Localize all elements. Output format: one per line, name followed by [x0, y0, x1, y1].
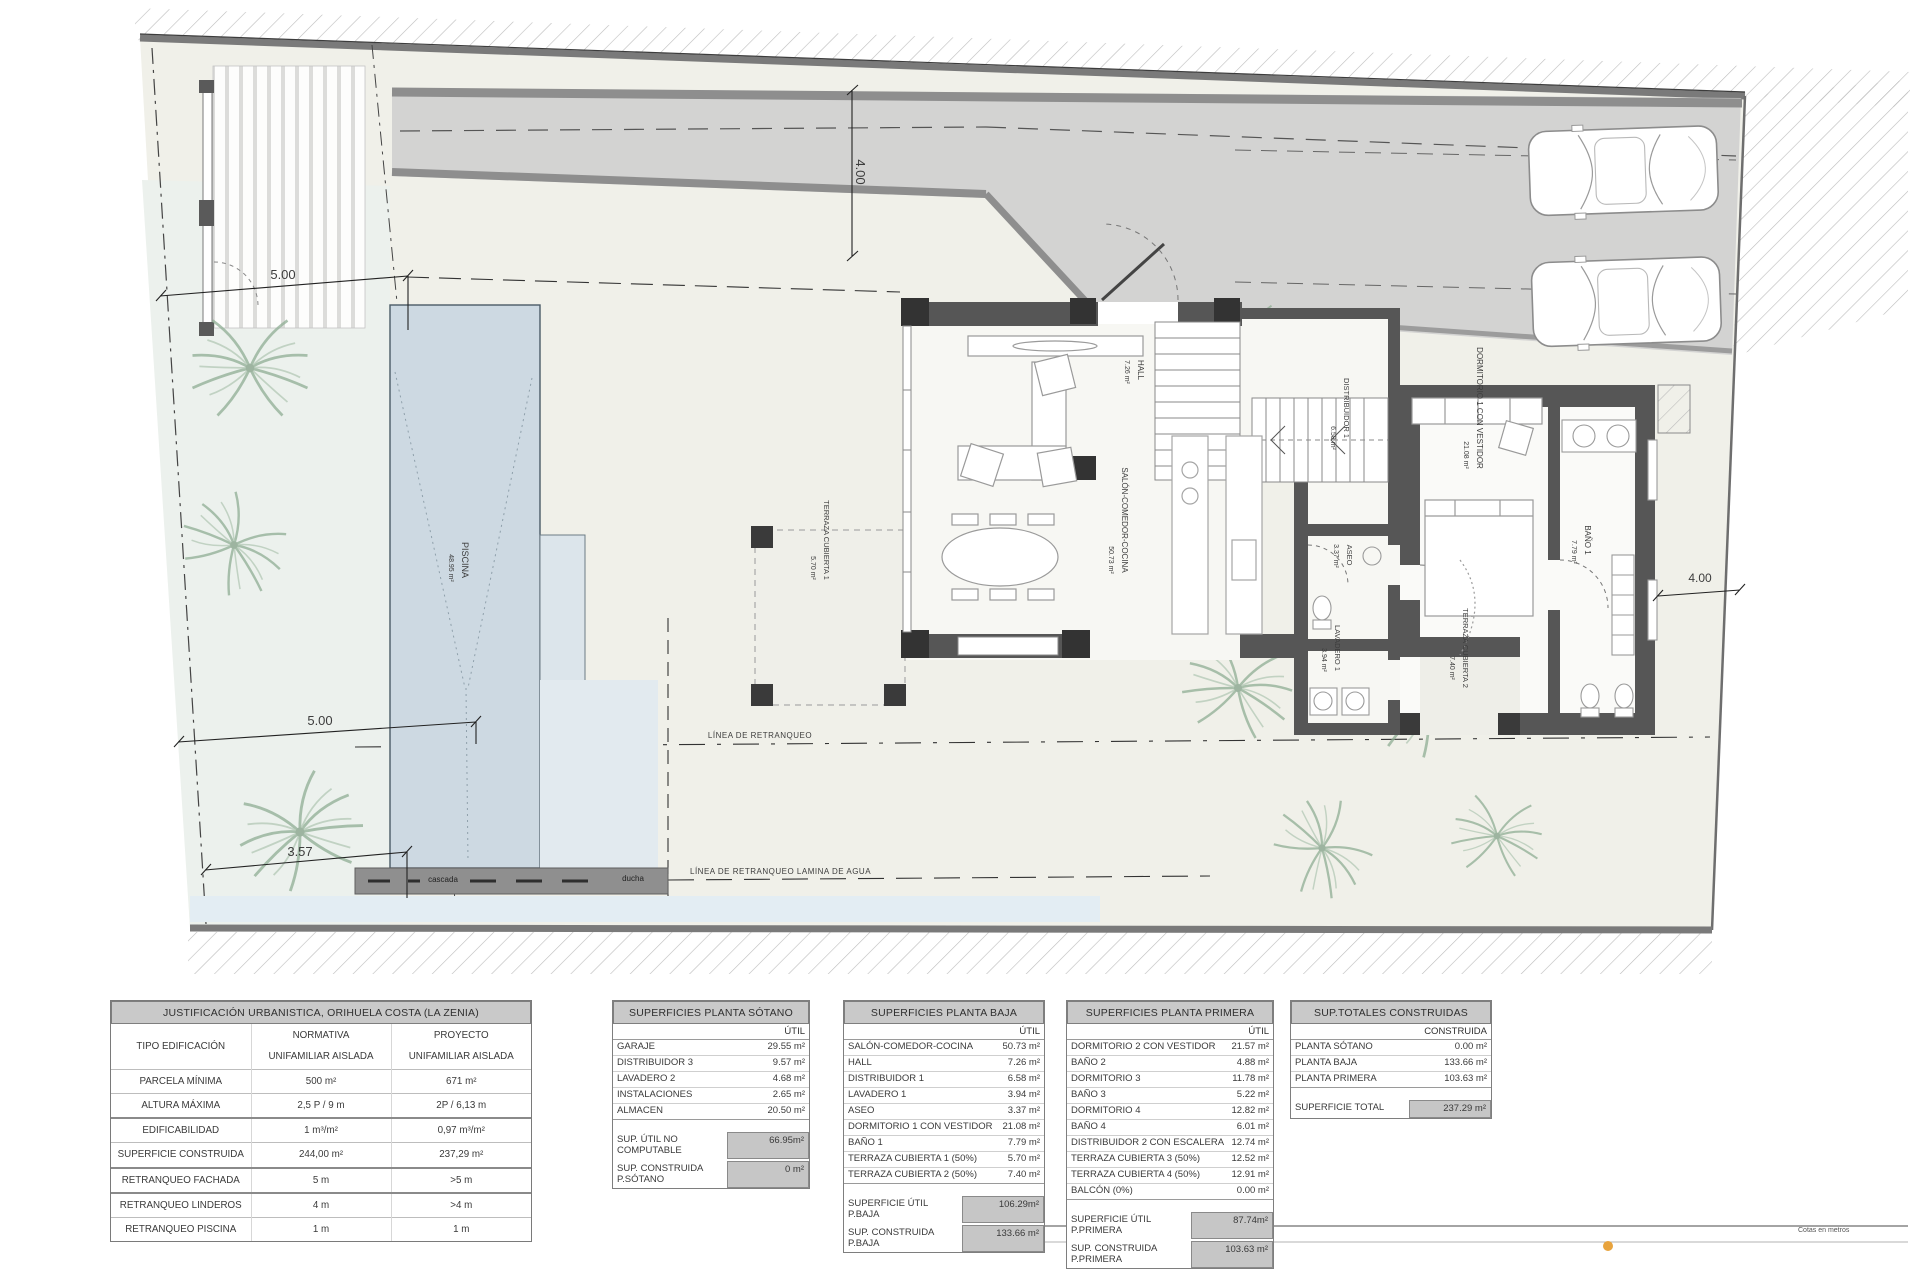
- cell-value: 4.88 m²: [1237, 1058, 1269, 1070]
- cell-value: 12.91 m²: [1232, 1170, 1270, 1182]
- cell-value: 6.58 m²: [1008, 1074, 1040, 1086]
- table-row: TERRAZA CUBIERTA 2 (50%)7.40 m²: [844, 1168, 1044, 1184]
- row-label: ALMACEN: [617, 1106, 667, 1118]
- column-header: NORMATIVA: [255, 1030, 388, 1041]
- cell-value: 103.63 m²: [1444, 1074, 1487, 1086]
- cell-value: 0,97 m³/m²: [391, 1118, 531, 1143]
- table-row: DORMITORIO 2 CON VESTIDOR21.57 m²: [1067, 1040, 1273, 1056]
- summary-label: SUP. CONSTRUIDA P.SÓTANO: [613, 1161, 727, 1188]
- summary-value: 103.63 m²: [1191, 1241, 1273, 1268]
- table-title: SUPERFICIES PLANTA SÓTANO: [613, 1001, 809, 1024]
- cell-value: 21.57 m²: [1232, 1042, 1270, 1054]
- reference-dot: [1603, 1241, 1613, 1251]
- row-label: DISTRIBUIDOR 3: [617, 1058, 697, 1070]
- row-label: DORMITORIO 1 CON VESTIDOR: [848, 1122, 996, 1134]
- row-label: PLANTA PRIMERA: [1295, 1074, 1381, 1086]
- cell-value: 244,00 m²: [251, 1143, 391, 1168]
- table-row: PLANTA BAJA133.66 m²: [1291, 1056, 1491, 1072]
- table-title: JUSTIFICACIÓN URBANISTICA, ORIHUELA COST…: [111, 1001, 531, 1024]
- row-label: ASEO: [848, 1106, 878, 1118]
- column-header: ÚTIL: [613, 1024, 809, 1039]
- table-summary: SUP. ÚTIL NO COMPUTABLE66.95m²SUP. CONST…: [613, 1132, 809, 1188]
- cell-value: >4 m: [391, 1193, 531, 1218]
- cell-value: UNIFAMILIAR AISLADA: [409, 1051, 514, 1062]
- dimension-label: 4.00: [853, 159, 868, 184]
- column-header: PROYECTO: [395, 1030, 529, 1041]
- room-label: DISTRIBUIDOR 1: [1342, 378, 1351, 438]
- cell-value: 237,29 m²: [391, 1143, 531, 1168]
- row-label: EDIFICABILIDAD: [111, 1118, 251, 1143]
- table-superficies-baja: SUPERFICIES PLANTA BAJA ÚTIL SALÓN-COMED…: [843, 1000, 1045, 1253]
- table-superficies-primera: SUPERFICIES PLANTA PRIMERA ÚTIL DORMITOR…: [1066, 1000, 1274, 1269]
- cell-value: 7.40 m²: [1008, 1170, 1040, 1182]
- row-label: PARCELA MÍNIMA: [111, 1069, 251, 1093]
- summary-label: SUP. CONSTRUIDA P.PRIMERA: [1067, 1241, 1191, 1268]
- cell-value: UNIFAMILIAR AISLADA: [268, 1051, 373, 1062]
- row-label: BAÑO 1: [848, 1138, 887, 1150]
- row-label: LAVADERO 1: [848, 1090, 910, 1102]
- room-area-label: 6.58 m²: [1329, 426, 1336, 450]
- table-row: HALL7.26 m²: [844, 1056, 1044, 1072]
- cell-value: >5 m: [391, 1168, 531, 1193]
- summary-value: 106.29m²: [962, 1196, 1044, 1223]
- column-header-cell: PROYECTOUNIFAMILIAR AISLADA: [391, 1024, 531, 1069]
- cell-value: 133.66 m²: [1444, 1058, 1487, 1070]
- table-row: INSTALACIONES2.65 m²: [613, 1088, 809, 1104]
- room-area-label: 7.40 m²: [1448, 656, 1455, 680]
- cell-value: 0.00 m²: [1455, 1042, 1487, 1054]
- row-label: BAÑO 3: [1071, 1090, 1110, 1102]
- table-row: LAVADERO 13.94 m²: [844, 1088, 1044, 1104]
- room-area-label: 21.08 m²: [1462, 441, 1469, 469]
- exterior-steps: [1658, 385, 1690, 433]
- table-row: DISTRIBUIDOR 16.58 m²: [844, 1072, 1044, 1088]
- table-title: SUP.TOTALES CONSTRUIDAS: [1291, 1001, 1491, 1024]
- table-row: TERRAZA CUBIERTA 3 (50%)12.52 m²: [1067, 1152, 1273, 1168]
- dimension-label: 4.00: [1688, 571, 1712, 585]
- row-label: ALTURA MÁXIMA: [111, 1093, 251, 1118]
- summary-row: SUPERFICIE ÚTIL P.PRIMERA87.74m²: [1067, 1212, 1273, 1239]
- row-label: PLANTA SÓTANO: [1295, 1042, 1377, 1054]
- table-justificacion-urbanistica: JUSTIFICACIÓN URBANISTICA, ORIHUELA COST…: [110, 1000, 532, 1242]
- table-rows: GARAJE29.55 m²DISTRIBUIDOR 39.57 m²LAVAD…: [613, 1039, 809, 1120]
- table-row: BAÑO 17.79 m²: [844, 1136, 1044, 1152]
- setback-line-label: LÍNEA DE RETRANQUEO: [708, 731, 812, 740]
- cell-value: 500 m²: [251, 1069, 391, 1093]
- urbanistica-body: TIPO EDIFICACIÓNNORMATIVAUNIFAMILIAR AIS…: [111, 1024, 531, 1241]
- row-label: RETRANQUEO LINDEROS: [111, 1193, 251, 1218]
- table-row: PARCELA MÍNIMA500 m²671 m²: [111, 1069, 531, 1093]
- room-area-label: 7.79 m²: [1570, 540, 1577, 564]
- cell-value: 7.79 m²: [1008, 1138, 1040, 1150]
- cell-value: 5 m: [251, 1168, 391, 1193]
- row-label: DISTRIBUIDOR 1: [848, 1074, 928, 1086]
- cell-value: 5.22 m²: [1237, 1090, 1269, 1102]
- table-row: BAÑO 24.88 m²: [1067, 1056, 1273, 1072]
- row-label: BALCÓN (0%): [1071, 1186, 1137, 1198]
- row-label: DISTRIBUIDOR 2 CON ESCALERA: [1071, 1138, 1228, 1150]
- room-label: HALL: [1136, 360, 1145, 381]
- row-label: TERRAZA CUBIERTA 2 (50%): [848, 1170, 981, 1182]
- cell-value: 21.08 m²: [1003, 1122, 1041, 1134]
- table-row: DORMITORIO 311.78 m²: [1067, 1072, 1273, 1088]
- room-label: ASEO: [1345, 545, 1354, 566]
- column-header: CONSTRUIDA: [1291, 1024, 1491, 1039]
- table-superficies-sotano: SUPERFICIES PLANTA SÓTANO ÚTIL GARAJE29.…: [612, 1000, 810, 1189]
- row-label: TIPO EDIFICACIÓN: [111, 1024, 251, 1069]
- cell-value: 4.68 m²: [773, 1074, 805, 1086]
- summary-label: SUPERFICIE ÚTIL P.BAJA: [844, 1196, 962, 1223]
- cell-value: 1 m³/m²: [251, 1118, 391, 1143]
- row-label: TERRAZA CUBIERTA 1 (50%): [848, 1154, 981, 1166]
- summary-row: SUP. CONSTRUIDA P.SÓTANO0 m²: [613, 1161, 809, 1188]
- table-row: ALMACEN20.50 m²: [613, 1104, 809, 1120]
- row-label: TERRAZA CUBIERTA 3 (50%): [1071, 1154, 1204, 1166]
- cell-value: 3.94 m²: [1008, 1090, 1040, 1102]
- dimension-label: 5.00: [270, 267, 295, 282]
- summary-value: 66.95m²: [727, 1132, 809, 1159]
- row-label: DORMITORIO 2 CON VESTIDOR: [1071, 1042, 1219, 1054]
- summary-value: 0 m²: [727, 1161, 809, 1188]
- dimension-label: 3.57: [287, 844, 312, 859]
- table-summary: SUPERFICIE ÚTIL P.BAJA106.29m²SUP. CONST…: [844, 1196, 1044, 1252]
- deck-label: cascada: [428, 875, 458, 884]
- summary-row: SUP. CONSTRUIDA P.PRIMERA103.63 m²: [1067, 1241, 1273, 1268]
- cell-value: 7.26 m²: [1008, 1058, 1040, 1070]
- row-label: SUPERFICIE CONSTRUIDA: [111, 1143, 251, 1168]
- summary-value: 237.29 m²: [1409, 1100, 1491, 1118]
- cell-value: 4 m: [251, 1193, 391, 1218]
- room-label: SALÓN-COMEDOR-COCINA: [1120, 467, 1129, 573]
- row-label: TERRAZA CUBIERTA 4 (50%): [1071, 1170, 1204, 1182]
- cell-value: 5.70 m²: [1008, 1154, 1040, 1166]
- cell-value: 6.01 m²: [1237, 1122, 1269, 1134]
- summary-row: SUPERFICIE ÚTIL P.BAJA106.29m²: [844, 1196, 1044, 1223]
- summary-label: SUPERFICIE TOTAL: [1291, 1100, 1388, 1118]
- table-title: SUPERFICIES PLANTA PRIMERA: [1067, 1001, 1273, 1024]
- cell-value: 671 m²: [391, 1069, 531, 1093]
- row-label: SALÓN-COMEDOR-COCINA: [848, 1042, 977, 1054]
- table-row: RETRANQUEO FACHADA5 m>5 m: [111, 1168, 531, 1193]
- row-label: DORMITORIO 3: [1071, 1074, 1145, 1086]
- scale-note-label: Cotas en metros: [1798, 1227, 1850, 1234]
- table-row: DISTRIBUIDOR 39.57 m²: [613, 1056, 809, 1072]
- table-totales-construidas: SUP.TOTALES CONSTRUIDAS CONSTRUIDA PLANT…: [1290, 1000, 1492, 1119]
- cell-value: 12.74 m²: [1232, 1138, 1270, 1150]
- parked-car: [1528, 120, 1719, 221]
- room-label: TERRAZA CUBIERTA 1: [822, 500, 831, 580]
- table-row: DORMITORIO 412.82 m²: [1067, 1104, 1273, 1120]
- summary-label: SUP. CONSTRUIDA P.BAJA: [844, 1225, 962, 1252]
- table-row: BALCÓN (0%)0.00 m²: [1067, 1184, 1273, 1200]
- room-label: PISCINA: [460, 542, 470, 578]
- row-label: RETRANQUEO FACHADA: [111, 1168, 251, 1193]
- cell-value: 1 m: [251, 1218, 391, 1242]
- table-row: SALÓN-COMEDOR-COCINA50.73 m²: [844, 1040, 1044, 1056]
- table-row: SUPERFICIE CONSTRUIDA244,00 m²237,29 m²: [111, 1143, 531, 1168]
- room-label: TERRAZA CUBIERTA 2: [1461, 608, 1470, 688]
- row-label: PLANTA BAJA: [1295, 1058, 1361, 1070]
- room-area-label: 7.26 m²: [1123, 360, 1130, 384]
- parked-car: [1531, 251, 1722, 352]
- table-title: SUPERFICIES PLANTA BAJA: [844, 1001, 1044, 1024]
- summary-value: 87.74m²: [1191, 1212, 1273, 1239]
- deck-pergola: [199, 66, 365, 336]
- table-row: ASEO3.37 m²: [844, 1104, 1044, 1120]
- setback-line-label: LÍNEA DE RETRANQUEO LAMINA DE AGUA: [690, 867, 871, 876]
- cell-value: 12.82 m²: [1232, 1106, 1270, 1118]
- room-area-label: 3.37 m²: [1332, 544, 1339, 568]
- cell-value: 50.73 m²: [1003, 1042, 1041, 1054]
- room-area-label: 5.70 m²: [809, 556, 816, 580]
- table-row: GARAJE29.55 m²: [613, 1040, 809, 1056]
- table-row: TIPO EDIFICACIÓNNORMATIVAUNIFAMILIAR AIS…: [111, 1024, 531, 1069]
- table-rows: PLANTA SÓTANO0.00 m²PLANTA BAJA133.66 m²…: [1291, 1039, 1491, 1088]
- cell-value: 2,5 P / 9 m: [251, 1093, 391, 1118]
- table-row: TERRAZA CUBIERTA 1 (50%)5.70 m²: [844, 1152, 1044, 1168]
- deck-label: ducha: [622, 874, 644, 883]
- column-header-cell: NORMATIVAUNIFAMILIAR AISLADA: [251, 1024, 391, 1069]
- table-row: PLANTA PRIMERA103.63 m²: [1291, 1072, 1491, 1088]
- table-row: ALTURA MÁXIMA2,5 P / 9 m2P / 6,13 m: [111, 1093, 531, 1118]
- column-header: ÚTIL: [1067, 1024, 1273, 1039]
- table-summary: SUPERFICIE TOTAL237.29 m²: [1291, 1100, 1491, 1118]
- row-label: INSTALACIONES: [617, 1090, 696, 1102]
- cell-value: 11.78 m²: [1232, 1074, 1269, 1086]
- cell-value: 2.65 m²: [773, 1090, 805, 1102]
- cell-value: 0.00 m²: [1237, 1186, 1269, 1198]
- summary-label: SUP. ÚTIL NO COMPUTABLE: [613, 1132, 727, 1159]
- cell-value: 29.55 m²: [768, 1042, 806, 1054]
- summary-row: SUPERFICIE TOTAL237.29 m²: [1291, 1100, 1491, 1118]
- summary-row: SUP. ÚTIL NO COMPUTABLE66.95m²: [613, 1132, 809, 1159]
- room-area-label: 48.95 m²: [447, 554, 454, 582]
- table-row: BAÑO 35.22 m²: [1067, 1088, 1273, 1104]
- plan-sheet: { "plan": { "colors": {"wall":"#565656",…: [0, 0, 1920, 1280]
- room-area-label: 50.73 m²: [1107, 546, 1114, 574]
- table-row: RETRANQUEO PISCINA1 m1 m: [111, 1218, 531, 1242]
- table-rows: SALÓN-COMEDOR-COCINA50.73 m²HALL7.26 m²D…: [844, 1039, 1044, 1184]
- cell-value: 20.50 m²: [768, 1106, 806, 1118]
- row-label: DORMITORIO 4: [1071, 1106, 1145, 1118]
- cell-value: 1 m: [391, 1218, 531, 1242]
- summary-label: SUPERFICIE ÚTIL P.PRIMERA: [1067, 1212, 1191, 1239]
- table-row: LAVADERO 24.68 m²: [613, 1072, 809, 1088]
- room-label: DORMITORIO 1 CON VESTIDOR: [1475, 347, 1484, 469]
- cell-value: 2P / 6,13 m: [391, 1093, 531, 1118]
- column-header: ÚTIL: [844, 1024, 1044, 1039]
- row-label: RETRANQUEO PISCINA: [111, 1218, 251, 1242]
- summary-value: 133.66 m²: [962, 1225, 1044, 1252]
- dimension-label: 5.00: [307, 713, 332, 728]
- table-row: PLANTA SÓTANO0.00 m²: [1291, 1040, 1491, 1056]
- summary-row: SUP. CONSTRUIDA P.BAJA133.66 m²: [844, 1225, 1044, 1252]
- room-area-label: 3.94 m²: [1320, 648, 1327, 672]
- table-row: DISTRIBUIDOR 2 CON ESCALERA12.74 m²: [1067, 1136, 1273, 1152]
- table-row: EDIFICABILIDAD1 m³/m²0,97 m³/m²: [111, 1118, 531, 1143]
- row-label: HALL: [848, 1058, 876, 1070]
- table-rows: DORMITORIO 2 CON VESTIDOR21.57 m²BAÑO 24…: [1067, 1039, 1273, 1200]
- table-row: BAÑO 46.01 m²: [1067, 1120, 1273, 1136]
- table-row: RETRANQUEO LINDEROS4 m>4 m: [111, 1193, 531, 1218]
- room-label: BAÑO 1: [1583, 525, 1592, 555]
- table-row: TERRAZA CUBIERTA 4 (50%)12.91 m²: [1067, 1168, 1273, 1184]
- cell-value: 12.52 m²: [1232, 1154, 1270, 1166]
- room-label: LAVADERO 1: [1333, 625, 1342, 671]
- row-label: GARAJE: [617, 1042, 659, 1054]
- table-summary: SUPERFICIE ÚTIL P.PRIMERA87.74m²SUP. CON…: [1067, 1212, 1273, 1268]
- cell-value: 9.57 m²: [773, 1058, 805, 1070]
- cell-value: 3.37 m²: [1008, 1106, 1040, 1118]
- table-row: DORMITORIO 1 CON VESTIDOR21.08 m²: [844, 1120, 1044, 1136]
- row-label: BAÑO 4: [1071, 1122, 1110, 1134]
- row-label: LAVADERO 2: [617, 1074, 679, 1086]
- row-label: BAÑO 2: [1071, 1058, 1110, 1070]
